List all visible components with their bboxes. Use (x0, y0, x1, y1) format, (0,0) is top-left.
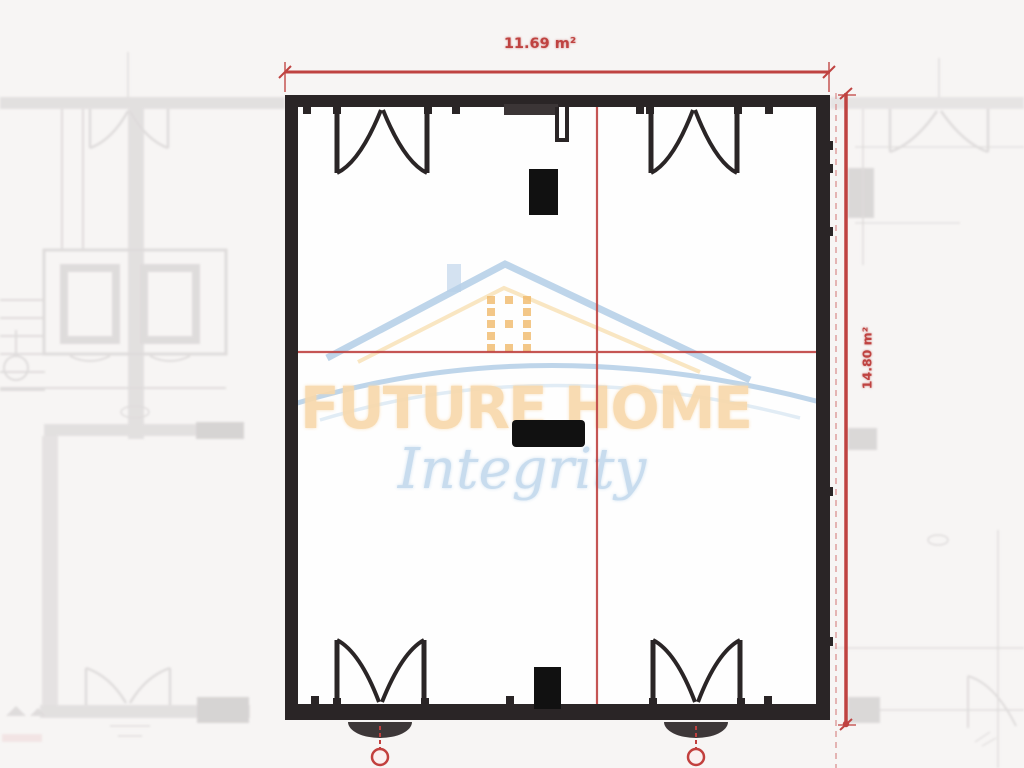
dimension-line-top (279, 62, 835, 92)
height-dimension-label: 14.80 m² (860, 311, 876, 406)
dimension-line-right (836, 88, 856, 768)
double-door-icon (651, 107, 737, 173)
double-door-icon (337, 640, 424, 705)
pillar (529, 169, 558, 215)
pillar (534, 667, 561, 709)
width-dimension-label: 11.69 m² (475, 36, 605, 52)
pillar (512, 420, 585, 447)
right-wall (816, 95, 830, 720)
double-door-icon (653, 640, 740, 705)
wall-stub (555, 107, 569, 142)
left-wall (285, 95, 298, 720)
wall-recess (504, 104, 558, 115)
dimension-lines (279, 62, 856, 768)
walls (285, 95, 833, 720)
double-door-icon (337, 107, 427, 173)
floor-plan-image: FUTURE HOME Integrity (0, 0, 1024, 768)
